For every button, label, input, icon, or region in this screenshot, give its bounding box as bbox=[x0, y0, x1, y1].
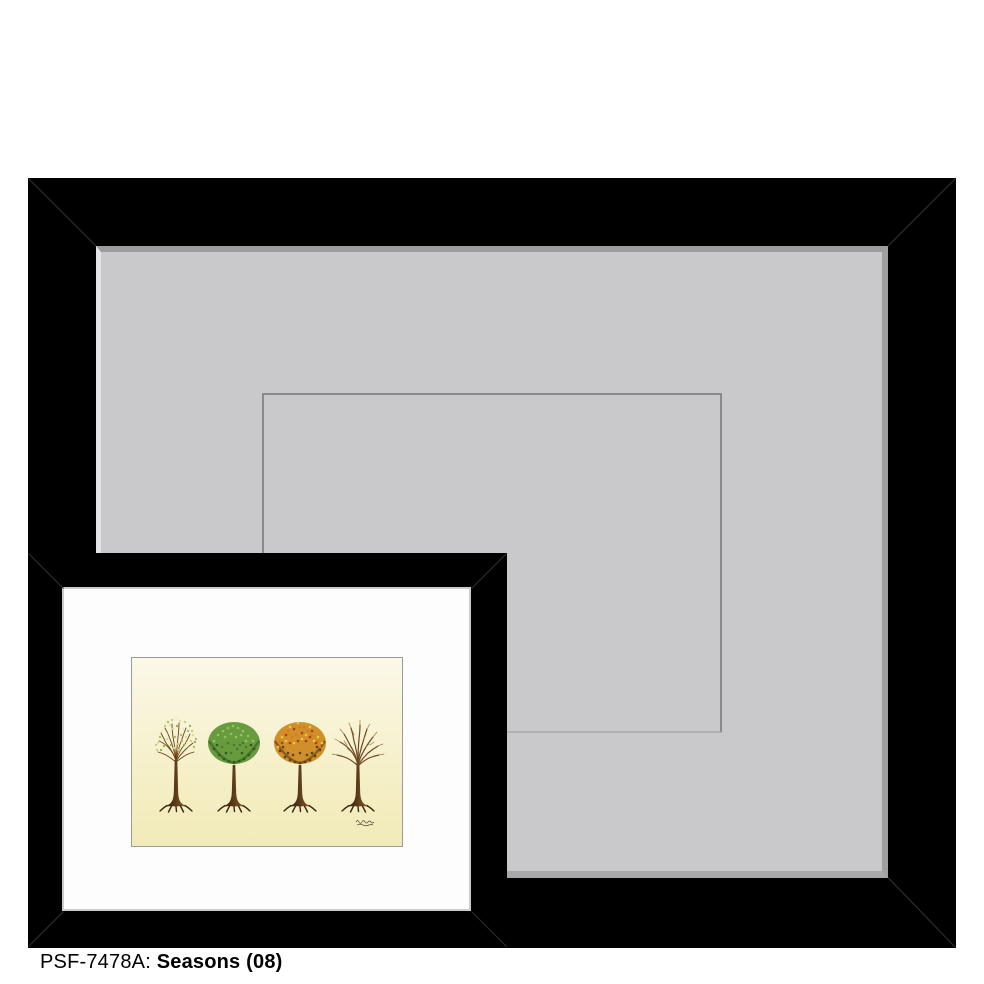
artwork-print bbox=[131, 657, 403, 847]
product-mockup: PSF-7478A: Seasons (08) bbox=[0, 0, 984, 984]
summer-crown bbox=[208, 722, 260, 764]
seasons-painting bbox=[132, 658, 402, 846]
caption-sku: PSF-7478A: bbox=[40, 951, 151, 973]
caption-title: Seasons (08) bbox=[157, 951, 283, 973]
product-caption: PSF-7478A: Seasons (08) bbox=[40, 950, 283, 974]
